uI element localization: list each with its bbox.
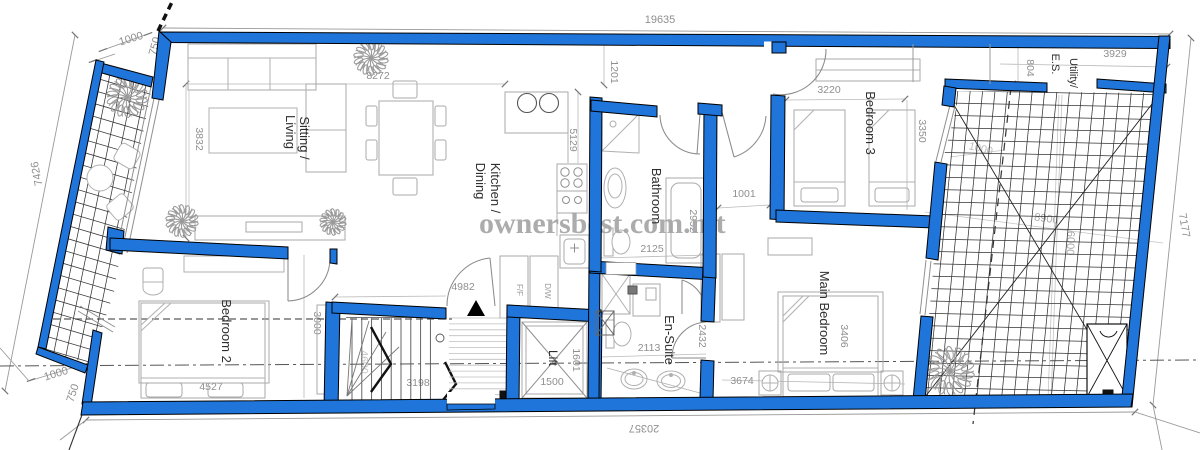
svg-text:Lift: Lift	[546, 350, 560, 367]
svg-text:2113: 2113	[638, 342, 661, 354]
svg-text:E.S.: E.S.	[1049, 54, 1061, 75]
svg-text:1601: 1601	[570, 348, 582, 372]
svg-text:Utility/: Utility/	[1067, 58, 1079, 89]
svg-text:5129: 5129	[567, 128, 579, 152]
svg-text:Bedroom 2: Bedroom 2	[219, 299, 234, 363]
svg-text:2432: 2432	[696, 324, 708, 348]
svg-text:4982: 4982	[451, 281, 475, 293]
svg-text:En-Suite: En-Suite	[662, 315, 677, 365]
svg-text:3220: 3220	[817, 84, 841, 96]
svg-text:Bathroom: Bathroom	[649, 168, 664, 224]
svg-text:3406: 3406	[838, 324, 850, 348]
svg-text:1500: 1500	[540, 376, 564, 388]
svg-text:8272: 8272	[366, 70, 390, 82]
svg-text:1201: 1201	[608, 60, 620, 84]
svg-text:Main Bedroom: Main Bedroom	[817, 271, 832, 356]
svg-text:Dining: Dining	[473, 163, 488, 200]
svg-text:2125: 2125	[640, 243, 664, 255]
svg-text:19635: 19635	[645, 14, 676, 26]
svg-text:3674: 3674	[730, 375, 754, 387]
svg-text:3350: 3350	[916, 119, 928, 143]
svg-text:Sitting /: Sitting /	[297, 116, 312, 160]
svg-text:20357: 20357	[629, 422, 660, 434]
svg-text:Living: Living	[283, 115, 298, 149]
svg-text:3929: 3929	[1103, 48, 1127, 60]
svg-text:Kitchen /: Kitchen /	[488, 163, 503, 214]
svg-text:D/W: D/W	[543, 283, 552, 299]
svg-text:Bedroom 3: Bedroom 3	[863, 91, 878, 155]
svg-text:3198: 3198	[406, 377, 430, 389]
svg-text:804: 804	[1024, 59, 1036, 77]
svg-text:ownersbest.com.mt: ownersbest.com.mt	[479, 207, 726, 240]
svg-text:3832: 3832	[193, 127, 205, 151]
svg-text:F/F: F/F	[515, 284, 524, 296]
svg-text:1001: 1001	[732, 188, 756, 200]
